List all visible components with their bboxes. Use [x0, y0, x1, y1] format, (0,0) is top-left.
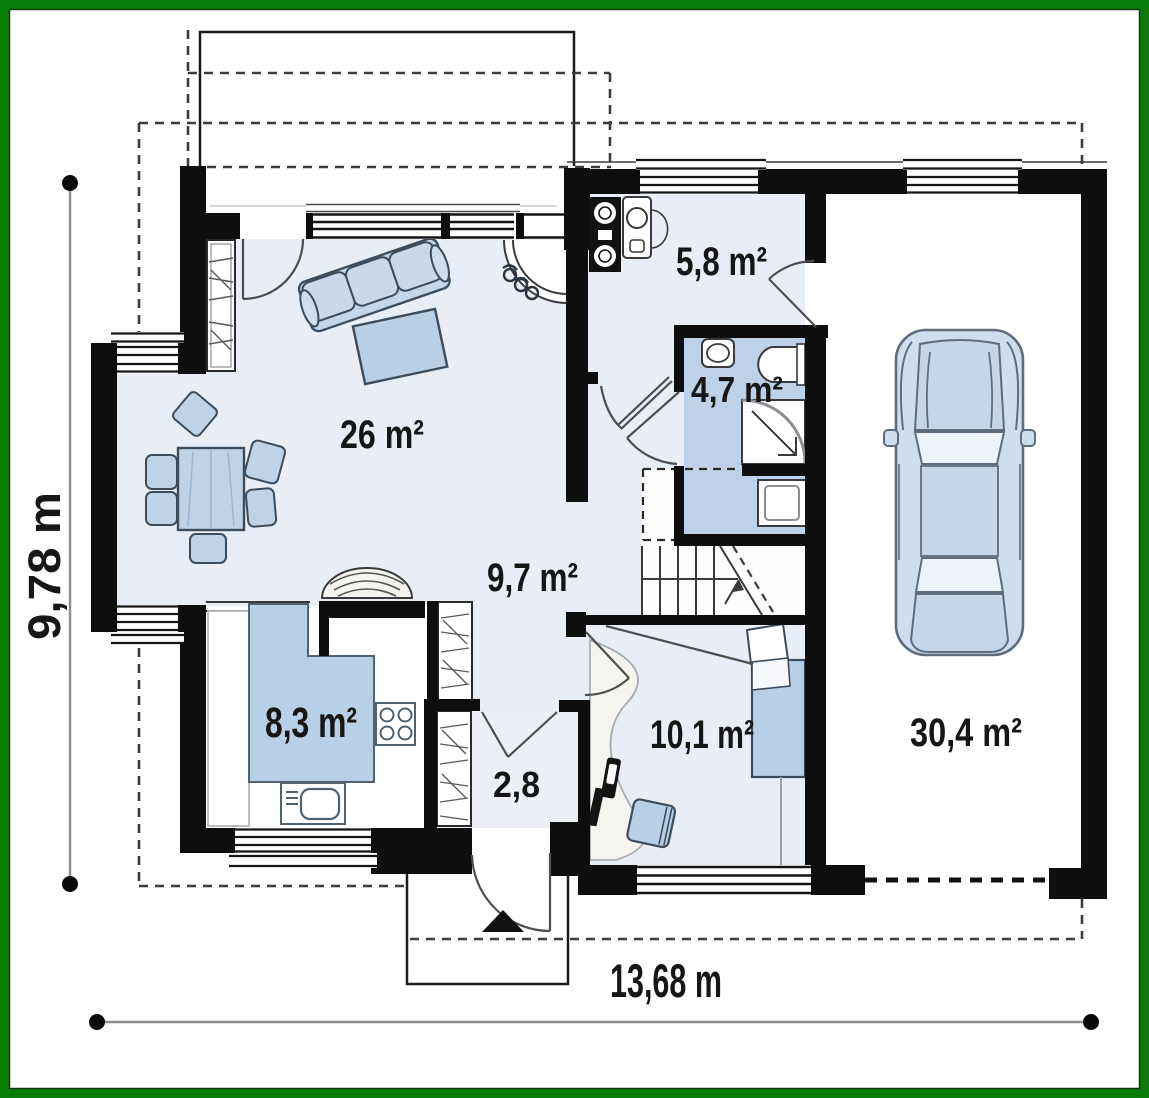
svg-text:8,3 m²: 8,3 m² [265, 699, 357, 747]
svg-text:10,1 m²: 10,1 m² [650, 713, 754, 757]
svg-text:9,7 m²: 9,7 m² [487, 556, 578, 600]
svg-text:5,8 m²: 5,8 m² [676, 240, 767, 284]
svg-text:13,68 m: 13,68 m [610, 954, 722, 1007]
svg-text:30,4 m²: 30,4 m² [910, 711, 1022, 755]
svg-text:2,8: 2,8 [493, 764, 540, 805]
svg-text:4,7 m²: 4,7 m² [691, 369, 783, 410]
svg-text:9,78 m: 9,78 m [19, 492, 70, 640]
svg-text:26 m²: 26 m² [340, 413, 424, 457]
